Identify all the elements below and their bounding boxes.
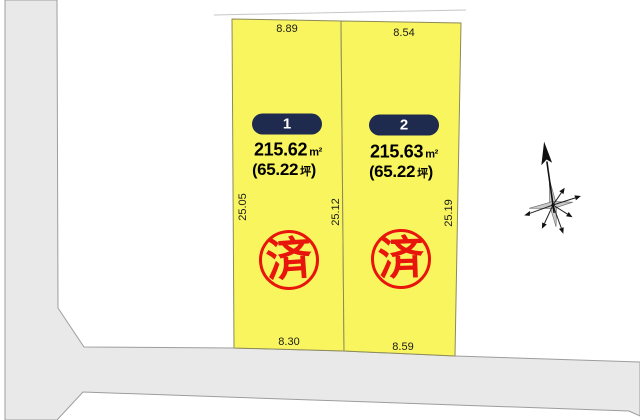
plot-1-tsubo-close: ) (311, 162, 316, 179)
plot-2-stamp-character: 済 (377, 234, 425, 282)
plot-2-area-tsubo: (65.22坪) (369, 162, 433, 182)
compass-icon (514, 138, 585, 239)
boundary-line (214, 10, 466, 15)
plot-1-stamp-character: 済 (264, 234, 313, 283)
plot-2-tsubo-unit: 坪 (417, 168, 428, 180)
plot-1-right-dimension: 25.12 (330, 198, 342, 226)
plot-2-tsubo-value: 65.22 (374, 162, 415, 181)
plot-1-area-sqm: 215.62m² (254, 140, 322, 161)
plot-1-bottom-dimension: 8.30 (278, 336, 299, 348)
plot-2-number-badge: 2 (369, 115, 439, 136)
plot-1-number: 1 (283, 116, 291, 133)
plot-2-top-dimension: 8.54 (393, 27, 414, 39)
plot-2-area-value: 215.63 (370, 142, 423, 162)
plot-2-area-sqm: 215.63m² (370, 142, 438, 163)
plot-2-number: 2 (400, 117, 408, 134)
plot-1-shape (232, 19, 344, 351)
plot-1-tsubo-unit: 坪 (300, 166, 311, 178)
plot-1-area-value: 215.62 (254, 140, 307, 160)
plot-1-top-dimension: 8.89 (276, 23, 297, 35)
plot-2-bottom-dimension: 8.59 (392, 341, 413, 353)
plot-1-tsubo-value: 65.22 (257, 160, 298, 179)
plot-1-area-tsubo: (65.22坪) (252, 160, 316, 180)
plot-2-tsubo-close: ) (428, 164, 433, 181)
map-graphics (0, 0, 640, 420)
plot-2-right-dimension: 25.19 (443, 199, 455, 227)
plot-1-left-dimension: 25.05 (237, 193, 249, 221)
plot-1-area-unit: m² (309, 147, 322, 159)
plot-map: 8.89 1 215.62m² (65.22坪) 25.05 25.12 済 8… (0, 0, 640, 420)
plot-1-number-badge: 1 (252, 114, 322, 135)
plot-2-area-unit: m² (425, 149, 438, 161)
plot-2-sold-stamp: 済 (370, 228, 432, 290)
plot-2-shape (341, 21, 461, 356)
